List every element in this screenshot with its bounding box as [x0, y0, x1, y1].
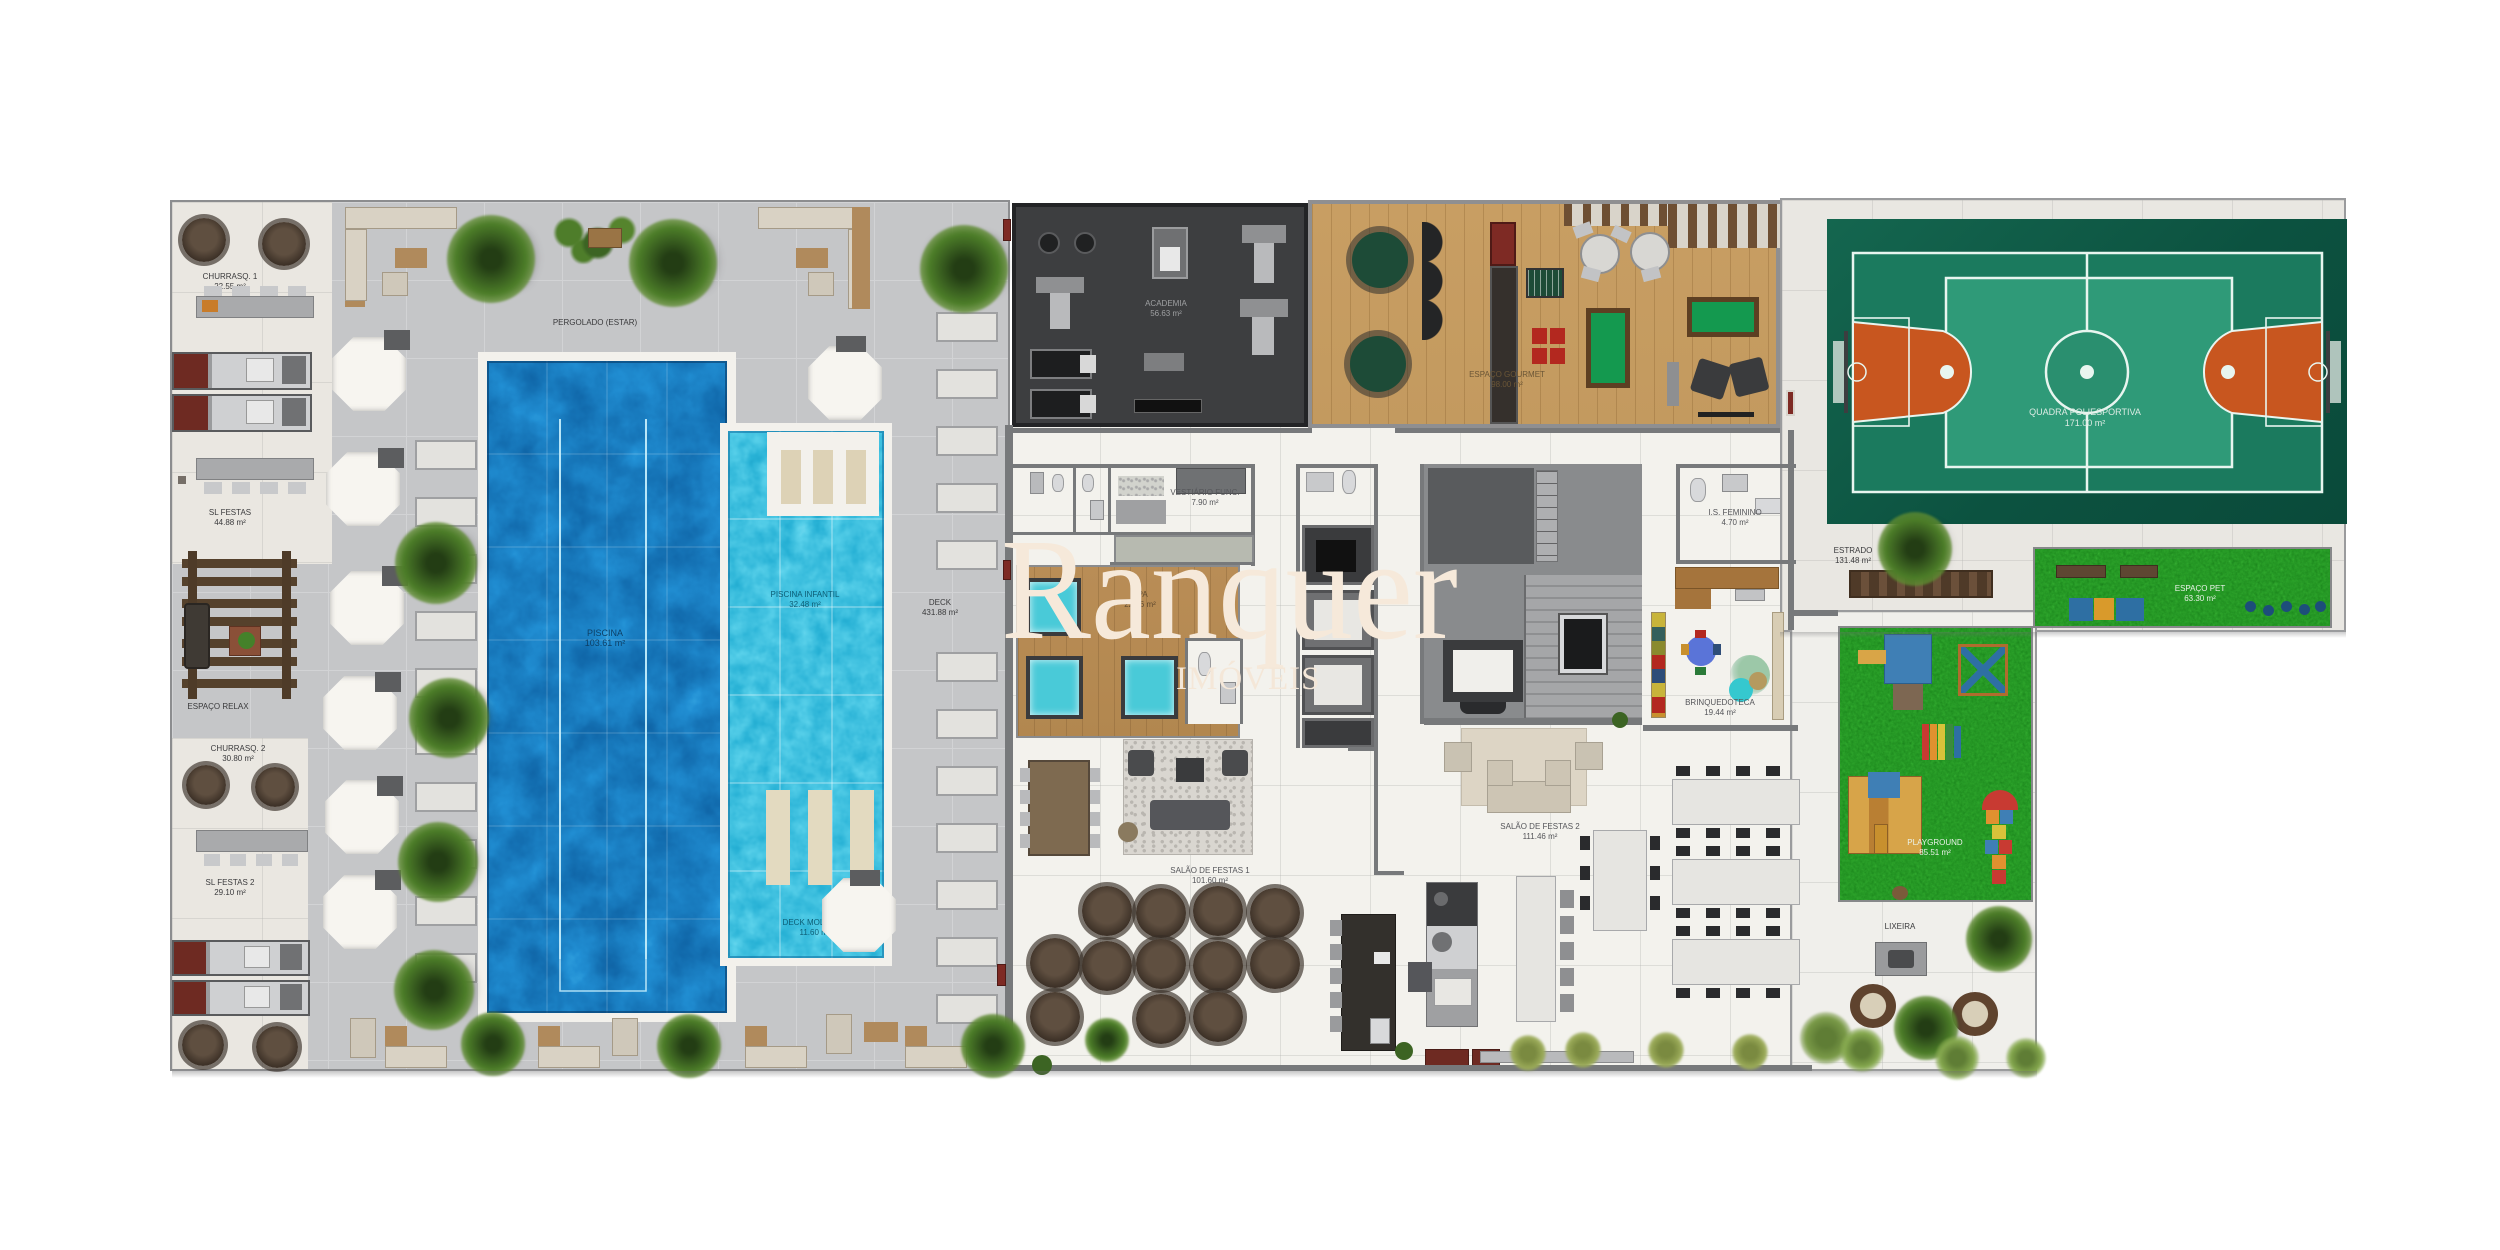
svg-text:QUADRA POLIESPORTIVA: QUADRA POLIESPORTIVA [2029, 407, 2141, 417]
svg-text:171.00 m²: 171.00 m² [2065, 418, 2106, 428]
